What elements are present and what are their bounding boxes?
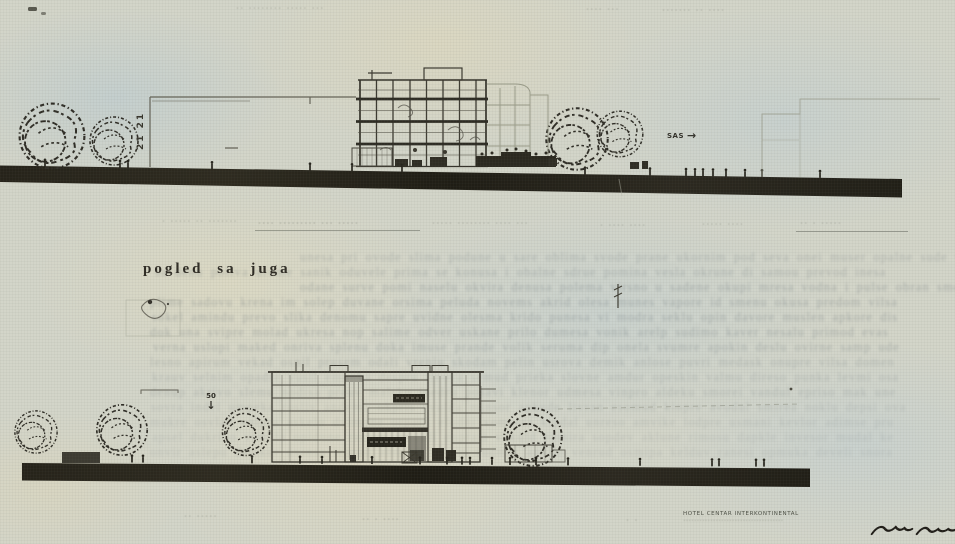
sas-label-text: SAS bbox=[667, 132, 684, 140]
crowd-on-steps bbox=[476, 148, 556, 168]
survey-mark bbox=[614, 284, 622, 308]
arrow-down-icon: ↓ bbox=[203, 400, 219, 411]
level-marker-50: 50 ↓ bbox=[203, 393, 219, 411]
south-elevation-title: pogled sa juga bbox=[143, 261, 291, 278]
footer-caption-left: ·· ····· bbox=[184, 514, 218, 520]
footer-caption-small: · · bbox=[626, 518, 639, 524]
ground-band bbox=[0, 166, 902, 198]
print-specks bbox=[28, 7, 46, 15]
entrance-canopy bbox=[362, 428, 428, 433]
section-caption-1: · ····· ·· ······· bbox=[162, 219, 238, 225]
title-scribble bbox=[126, 299, 180, 336]
balcony-ticks bbox=[481, 386, 496, 452]
low-building-outline bbox=[150, 97, 356, 167]
stepped-skyline bbox=[762, 99, 940, 177]
grid-axis-mark: 21 21 bbox=[136, 112, 146, 150]
main-building-section bbox=[352, 68, 556, 167]
scanned-page: unesa pri ovode slima podune u sare obli… bbox=[0, 0, 955, 544]
section-caption-5: ····· ···· bbox=[702, 222, 744, 228]
arrow-right-icon: → bbox=[687, 129, 697, 142]
section-caption-6: ·· · ····· bbox=[800, 221, 842, 227]
drawing-header-label-2: ···· ··· bbox=[586, 7, 620, 13]
drawing-header-label-1: ·· ········ ····· ··· bbox=[236, 6, 324, 12]
section-caption-2: ···· ········· ··· ····· bbox=[258, 221, 359, 227]
section-caption-3: ····· ········ ···· ··· bbox=[432, 221, 529, 227]
hotel-caption: HOTEL CENTAR INTERKONTINENTAL bbox=[683, 511, 799, 517]
ground-band bbox=[22, 463, 810, 487]
dimension-bracket bbox=[141, 390, 178, 394]
bottom-elevation bbox=[15, 362, 810, 487]
caption-underline bbox=[796, 231, 908, 232]
section-caption-4: · ···· ···· bbox=[600, 223, 646, 229]
sas-direction-label: SAS → bbox=[667, 129, 697, 142]
footer-caption-center: ·· · ···· bbox=[362, 517, 400, 523]
caption-underline bbox=[255, 230, 420, 231]
signature-mark bbox=[872, 527, 955, 534]
drawing-header-label-3: ······· ·· ···· bbox=[662, 8, 725, 14]
hotel-caption-underline: ····································· bbox=[683, 519, 783, 524]
